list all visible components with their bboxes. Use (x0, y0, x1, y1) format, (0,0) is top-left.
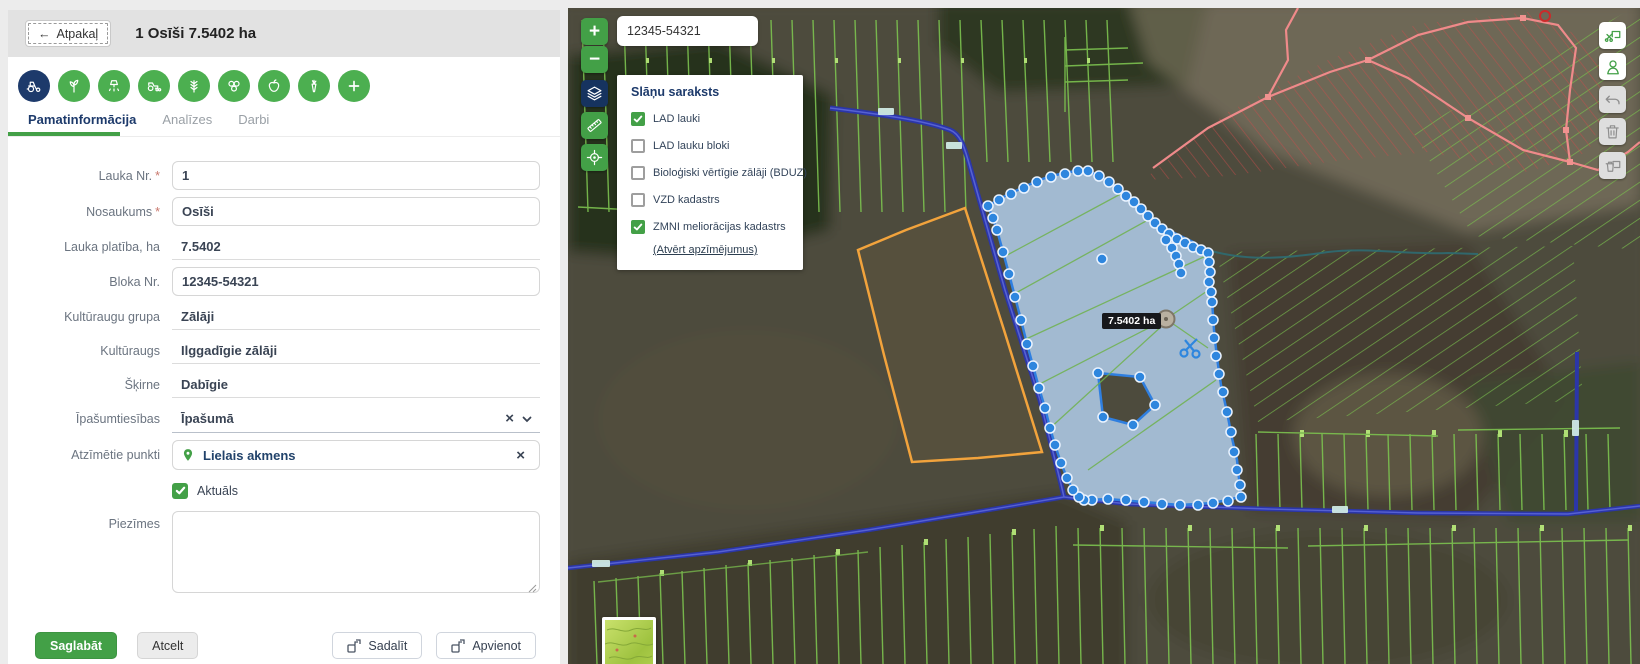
label-kulturaugs: Kultūraugs (8, 344, 172, 358)
vertex-handle[interactable] (1046, 172, 1056, 182)
panel-header: ← Atpakaļ 1 Osīši 7.5402 ha (8, 10, 560, 57)
kulturaugs-value: Ilggadīgie zālāji (172, 338, 540, 364)
vertex-handle[interactable] (1093, 368, 1103, 378)
label-piezimes: Piezīmes (8, 511, 172, 531)
layer-row[interactable]: Bioloģiski vērtīgie zālāji (BDUZ) (631, 166, 793, 180)
vertex-handle[interactable] (1062, 473, 1072, 483)
add-field-icon[interactable] (338, 70, 370, 102)
vertex-handle[interactable] (1214, 369, 1224, 379)
vertex-handle[interactable] (1073, 166, 1083, 176)
undo-button[interactable] (1599, 86, 1626, 113)
spraying-icon[interactable] (98, 70, 130, 102)
vertex-handle[interactable] (1045, 423, 1055, 433)
vertex-handle[interactable] (1204, 257, 1214, 267)
vertex-handle[interactable] (1206, 287, 1216, 297)
layers-icon (586, 85, 603, 102)
split-button[interactable]: Sadalīt (332, 632, 422, 659)
layer-label: VZD kadastrs (653, 194, 720, 206)
back-button[interactable]: ← Atpakaļ (25, 20, 111, 47)
form-footer: Saglabāt Atcelt Sadalīt Apvienot (35, 632, 536, 659)
platiba-value: 7.5402 (172, 234, 540, 260)
sprout-icon[interactable] (58, 70, 90, 102)
measure-button[interactable] (581, 112, 608, 139)
vertex-handle[interactable] (1083, 166, 1093, 176)
label-kulturaugu-grupa: Kultūraugu grupa (8, 310, 172, 324)
layer-label: ZMNI meliorācijas kadastrs (653, 221, 786, 233)
skirne-value: Dabīgie (172, 372, 540, 398)
drainage-hatch-right (1216, 246, 1583, 422)
layer-row[interactable]: ZMNI meliorācijas kadastrs (631, 220, 793, 234)
back-arrow-icon: ← (38, 27, 51, 41)
vertex-handle[interactable] (1205, 267, 1215, 277)
vertex-handle[interactable] (1034, 383, 1044, 393)
label-ipasumtiesibas: Īpašumtiesības (8, 412, 172, 426)
vertex-handle[interactable] (1094, 171, 1104, 181)
vertex-handle[interactable] (1209, 333, 1219, 343)
checkbox-checked[interactable] (631, 220, 645, 234)
vertex-handle[interactable] (1128, 420, 1138, 430)
layers-panel-title: Slāņu saraksts (631, 85, 793, 99)
vertex-handle[interactable] (1028, 361, 1038, 371)
zoom-out-button[interactable]: − (581, 46, 608, 73)
vertex-handle[interactable] (1135, 372, 1145, 382)
vertex-handle[interactable] (1208, 315, 1218, 325)
vertex-handle[interactable] (1157, 499, 1167, 509)
checkbox-unchecked[interactable] (631, 193, 645, 207)
vertex-handle[interactable] (1204, 277, 1214, 287)
checkbox-checked[interactable] (631, 112, 645, 126)
vertex-handle[interactable] (1032, 177, 1042, 187)
layer-row[interactable]: LAD lauku bloki (631, 139, 793, 153)
area-tooltip: 7.5402 ha (1102, 313, 1161, 329)
piezimes-textarea[interactable] (172, 511, 540, 593)
vertex-handle[interactable] (1098, 412, 1108, 422)
vertex-handle[interactable] (1121, 495, 1131, 505)
vertex-handle[interactable] (1235, 480, 1245, 490)
field-edit-panel: ← Atpakaļ 1 Osīši 7.5402 ha (8, 10, 560, 664)
carrot-icon[interactable] (298, 70, 330, 102)
back-button-label: Atpakaļ (57, 27, 99, 41)
bales-icon[interactable] (218, 70, 250, 102)
vertex-handle[interactable] (1019, 183, 1029, 193)
zoom-in-button[interactable]: + (581, 18, 608, 45)
minimap-content (605, 620, 653, 664)
vertex-handle[interactable] (1004, 269, 1014, 279)
apple-icon[interactable] (258, 70, 290, 102)
layer-label: LAD lauku bloki (653, 140, 729, 152)
tab-darbi[interactable]: Darbi (238, 112, 269, 136)
clear-icon[interactable]: × (510, 447, 531, 464)
vertex-handle[interactable] (1016, 315, 1026, 325)
vertex-handle[interactable] (1050, 440, 1060, 450)
vertex-handle[interactable] (1068, 485, 1078, 495)
vertex-handle[interactable] (1226, 427, 1236, 437)
seeder-icon[interactable] (138, 70, 170, 102)
cut-polygon-icon (1604, 27, 1622, 45)
vertex-handle[interactable] (1211, 351, 1221, 361)
delete-polygon-button[interactable] (1599, 152, 1626, 179)
vertex-handle[interactable] (992, 225, 1002, 235)
vertex-handle[interactable] (1097, 254, 1107, 264)
tractor-icon[interactable] (18, 70, 50, 102)
label-atzimetie-punkti: Atzīmētie punkti (8, 448, 172, 462)
delete-button[interactable] (1599, 118, 1626, 145)
kulturaugu-grupa-value: Zālāji (172, 304, 540, 330)
label-platiba: Lauka platība, ha (8, 240, 172, 254)
tab-bar: Pamatinformācija Analīzes Darbi (8, 102, 560, 136)
person-pin-icon (1604, 58, 1622, 76)
vertex-handle[interactable] (1229, 447, 1239, 457)
vertex-handle[interactable] (998, 247, 1008, 257)
layer-label: LAD lauki (653, 113, 700, 125)
vertex-handle[interactable] (1193, 500, 1203, 510)
ruler-icon (586, 117, 603, 134)
field-form: Lauka Nr.* 1 Nosaukums* Osīši Lauka plat… (8, 137, 560, 659)
vertex-handle[interactable] (1040, 403, 1050, 413)
lauka-nr-input[interactable]: 1 (172, 161, 540, 190)
nosaukums-input[interactable]: Osīši (172, 197, 540, 226)
merge-polygon-icon (451, 639, 465, 653)
label-lauka-nr: Lauka Nr.* (8, 169, 172, 183)
atzimetie-punkti-field[interactable]: Lielais akmens × (172, 440, 540, 470)
layer-label: Bioloģiski vērtīgie zālāji (BDUZ) (653, 167, 807, 179)
vertex-handle[interactable] (1139, 497, 1149, 507)
trash-icon (1604, 123, 1621, 140)
map-search-input[interactable] (617, 16, 758, 46)
split-polygon-icon (347, 639, 361, 653)
tab-analizes[interactable]: Analīzes (162, 112, 212, 136)
vertex-handle[interactable] (1175, 500, 1185, 510)
vertex-handle[interactable] (1006, 189, 1016, 199)
cut-polygon-button[interactable] (1599, 22, 1626, 49)
layers-button[interactable] (581, 80, 608, 107)
vertex-handle[interactable] (1060, 169, 1070, 179)
map-canvas[interactable]: + − Slāņu saraksts LAD laukiLAD lauku bl… (568, 8, 1640, 664)
vertex-handle[interactable] (1223, 496, 1233, 506)
vertex-handle[interactable] (994, 195, 1004, 205)
vertex-handle[interactable] (1208, 498, 1218, 508)
vertex-handle[interactable] (1010, 292, 1020, 302)
label-skirne: Šķirne (8, 378, 172, 392)
action-icon-row (8, 57, 560, 102)
legend-link[interactable]: (Atvērt apzīmējumus) (653, 244, 758, 256)
chevron-down-icon[interactable] (520, 412, 534, 426)
vertex-handle[interactable] (1104, 177, 1114, 187)
active-tab-underline (8, 132, 120, 136)
bloka-nr-input[interactable]: 12345-54321 (172, 267, 540, 296)
crosshair-icon (586, 149, 603, 166)
cancel-button[interactable]: Atcelt (137, 632, 198, 659)
page-title: 1 Osīši 7.5402 ha (135, 25, 256, 42)
add-marker-button[interactable] (1599, 53, 1626, 80)
vertex-handle[interactable] (1207, 297, 1217, 307)
vertex-handle[interactable] (1218, 387, 1228, 397)
label-bloka-nr: Bloka Nr. (8, 275, 172, 289)
vertex-handle[interactable] (1222, 407, 1232, 417)
overview-minimap[interactable] (602, 617, 656, 664)
layer-row[interactable]: LAD lauki (631, 112, 793, 126)
clear-icon[interactable]: × (499, 410, 520, 427)
location-pin-icon (181, 448, 195, 462)
layer-row[interactable]: VZD kadastrs (631, 193, 793, 207)
ipasumtiesibas-select[interactable]: Īpašumā × (172, 405, 540, 433)
merge-button[interactable]: Apvienot (436, 632, 536, 659)
aktuals-label: Aktuāls (197, 484, 238, 498)
vertex-handle[interactable] (1056, 458, 1066, 468)
vertex-handle[interactable] (1176, 268, 1186, 278)
save-button[interactable]: Saglabāt (35, 632, 117, 659)
vertex-handle[interactable] (1150, 400, 1160, 410)
vertex-handle[interactable] (1232, 465, 1242, 475)
aktuals-checkbox[interactable] (172, 483, 188, 499)
layers-panel: Slāņu saraksts LAD laukiLAD lauku blokiB… (617, 75, 803, 270)
checkbox-unchecked[interactable] (631, 139, 645, 153)
vertex-handle[interactable] (988, 213, 998, 223)
wheat-icon[interactable] (178, 70, 210, 102)
locate-button[interactable] (581, 144, 608, 171)
label-nosaukums: Nosaukums* (8, 205, 172, 219)
vertex-handle[interactable] (1022, 339, 1032, 349)
checkbox-unchecked[interactable] (631, 166, 645, 180)
vertex-handle[interactable] (1103, 494, 1113, 504)
undo-icon (1604, 91, 1622, 109)
vertex-handle[interactable] (1236, 492, 1246, 502)
trash-polygon-icon (1604, 157, 1622, 175)
vertex-handle[interactable] (983, 201, 993, 211)
